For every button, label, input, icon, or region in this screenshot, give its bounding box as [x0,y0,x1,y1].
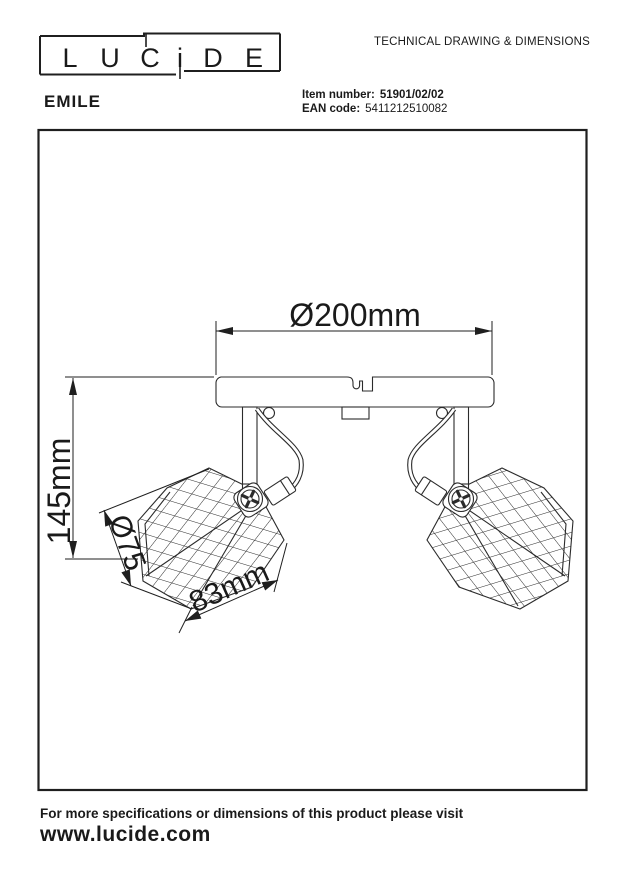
dimension-height-label: 145mm [41,438,77,545]
canopy-block [342,407,369,419]
logo-border-top [40,34,280,37]
right-spot-assembly [410,407,573,609]
item-number-value: 51901/02/02 [380,89,444,101]
ean-value: 5411212510082 [365,103,447,115]
ceiling-fixture-drawing [138,377,573,609]
dimension-width: Ø200mm [216,297,492,375]
logo-letter: U [100,43,120,73]
dimension-width-label: Ø200mm [289,297,421,333]
logo-letter: D [203,43,223,73]
logo-letter: L [62,43,77,73]
ean-line: EAN code:5411212510082 [302,103,447,115]
product-name: EMILE [44,92,101,111]
document-title: TECHNICAL DRAWING & DIMENSIONS [374,36,590,48]
technical-drawing-sheet: L U C i D E TECHNICAL DRAWING & DIMENSIO… [0,0,620,877]
footer-note: For more specifications or dimensions of… [40,806,464,821]
document-page: L U C i D E TECHNICAL DRAWING & DIMENSIO… [0,0,620,877]
wire-loop [257,409,301,491]
ceiling-mount-bar [216,377,494,407]
logo-letter: C [140,43,160,73]
footer-website: www.lucide.com [39,823,211,846]
ean-label: EAN code: [302,103,360,115]
item-number-line: Item number:51901/02/02 [302,89,444,101]
lucide-logo: L U C i D E [40,34,280,80]
logo-letter: E [245,43,263,73]
item-number-label: Item number: [302,89,375,101]
logo-letter: i [177,43,183,73]
drawing-frame [39,130,587,790]
